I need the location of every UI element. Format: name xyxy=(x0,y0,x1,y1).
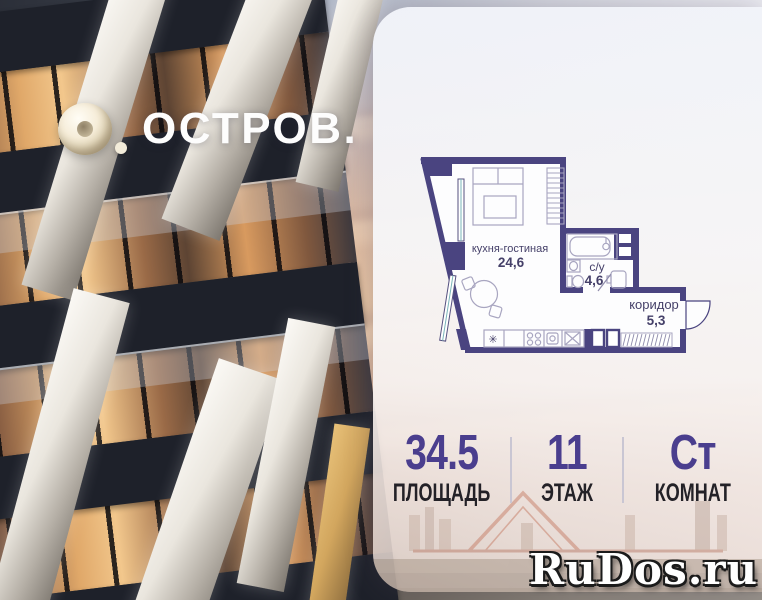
ostrov-logo: ОСТРОВ. xyxy=(58,103,358,155)
room-kitchen-label: кухня-гостиная xyxy=(472,243,548,255)
room-bath-area: 4,6 xyxy=(585,273,604,288)
room-hall-area: 5,3 xyxy=(647,313,666,328)
room-hall-label: коридор xyxy=(629,297,679,312)
listing-card: ОСТРОВ. xyxy=(0,0,762,600)
rudos-watermark: RuDos.ru xyxy=(529,545,758,594)
washer-dryer-icons xyxy=(618,233,632,257)
stat-area-label: ПЛОЩАДЬ xyxy=(393,480,490,506)
stat-floor: 11 ЭТАЖ xyxy=(512,431,622,506)
stat-rooms-label: КОМНАТ xyxy=(655,480,731,506)
stat-area-value: 34.5 xyxy=(405,431,478,475)
brand-name: ОСТРОВ. xyxy=(142,104,358,154)
ostrov-logo-icon xyxy=(58,103,112,155)
info-panel: ✳ xyxy=(373,7,762,592)
stat-rooms-value: Ст xyxy=(670,431,716,475)
hall-closet-hatch xyxy=(621,333,672,347)
svg-text:✳: ✳ xyxy=(488,334,497,346)
stats-row: 34.5 ПЛОЩАДЬ 11 ЭТАЖ Ст КОМНАТ xyxy=(373,431,762,506)
room-kitchen-area: 24,6 xyxy=(498,255,525,270)
floor-plan: ✳ xyxy=(392,143,732,373)
room-bath-label: с/у xyxy=(589,260,604,274)
logo-donut-hole xyxy=(77,121,93,137)
entrance-door-swing xyxy=(686,301,710,329)
logo-period-dot xyxy=(115,142,127,154)
stat-area: 34.5 ПЛОЩАДЬ xyxy=(373,431,510,506)
stat-floor-value: 11 xyxy=(547,431,587,475)
stat-floor-label: ЭТАЖ xyxy=(541,480,593,506)
stat-rooms: Ст КОМНАТ xyxy=(624,431,762,506)
